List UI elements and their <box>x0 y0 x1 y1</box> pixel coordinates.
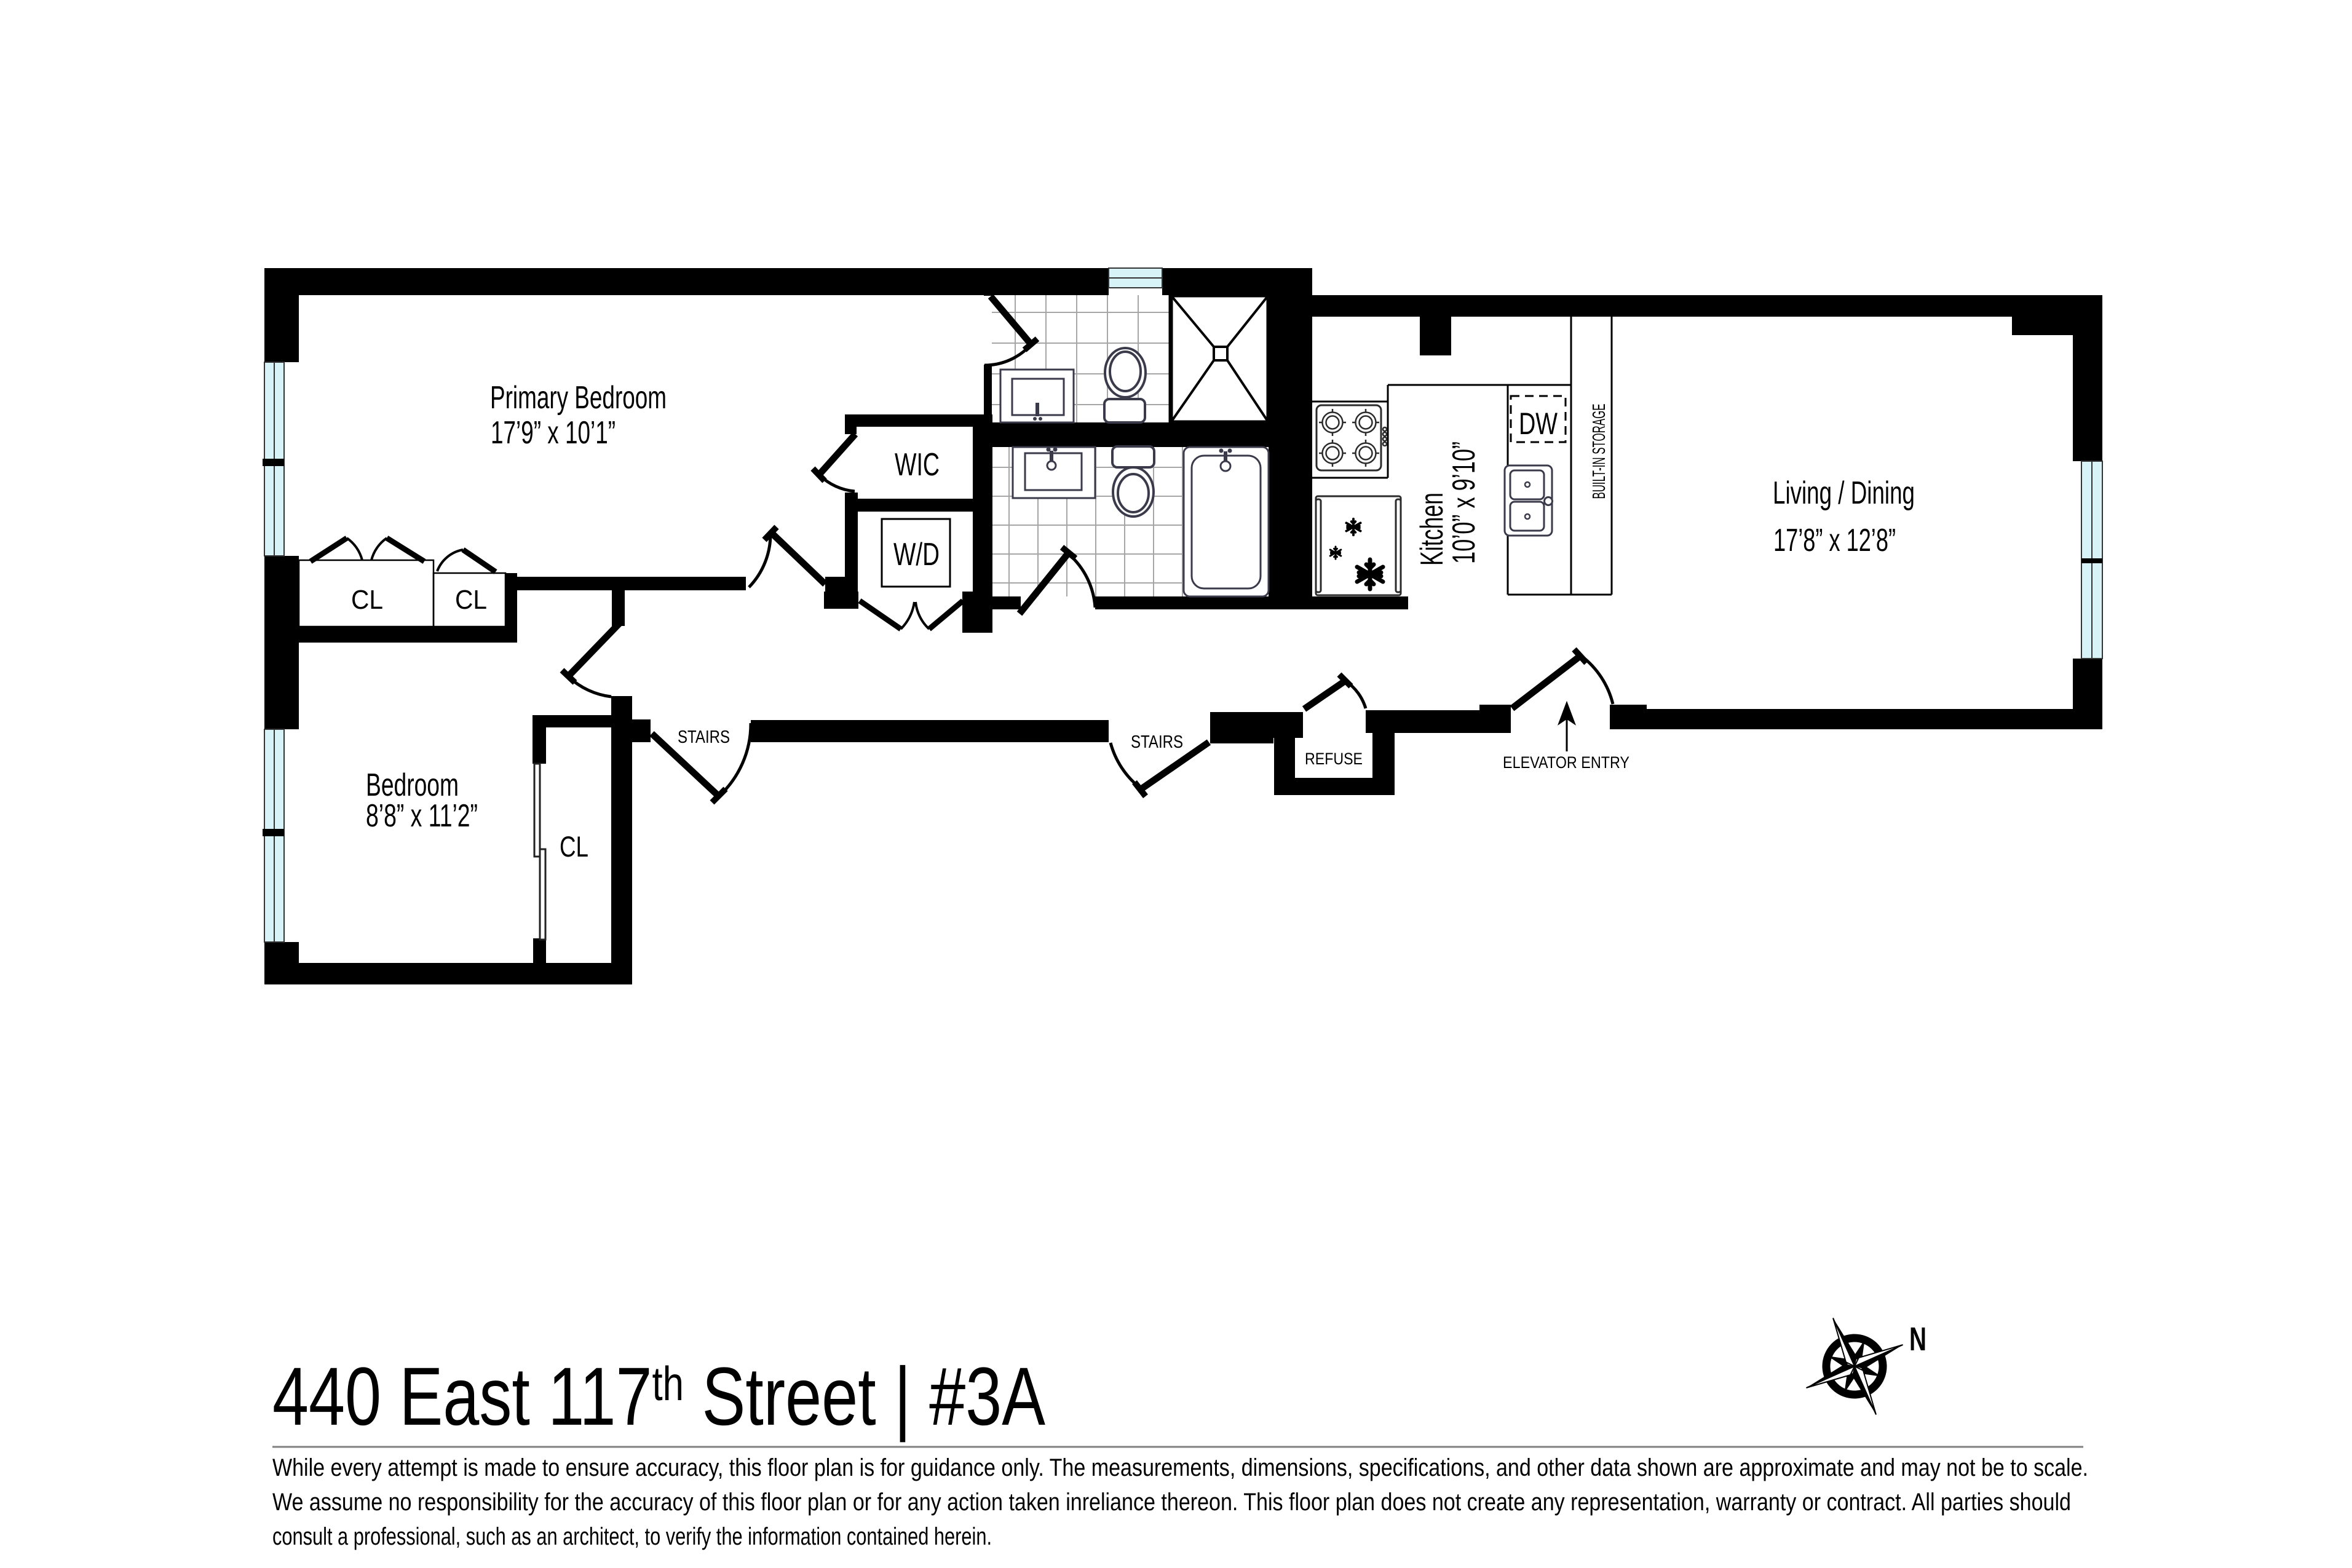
svg-text:10’0” x 9’10”: 10’0” x 9’10” <box>1446 441 1482 564</box>
svg-text:While every attempt is made to: While every attempt is made to ensure ac… <box>272 1454 2088 1481</box>
svg-text:WIC: WIC <box>895 447 940 483</box>
svg-text:CL: CL <box>455 585 487 615</box>
svg-text:ELEVATOR ENTRY: ELEVATOR ENTRY <box>1503 753 1629 772</box>
svg-text:DW: DW <box>1519 406 1558 441</box>
svg-text:W/D: W/D <box>893 537 940 572</box>
svg-text:Living / Dining: Living / Dining <box>1773 475 1915 511</box>
svg-text:consult a professional, such a: consult a professional, such as an archi… <box>272 1523 992 1550</box>
svg-text:N: N <box>1909 1321 1926 1358</box>
svg-text:8’8” x 11’2”: 8’8” x 11’2” <box>366 798 478 834</box>
svg-text:CL: CL <box>351 585 383 615</box>
svg-text:REFUSE: REFUSE <box>1305 750 1363 768</box>
svg-text:BUILT-IN STORAGE: BUILT-IN STORAGE <box>1590 404 1609 499</box>
svg-text:Kitchen: Kitchen <box>1414 493 1450 566</box>
svg-text:CL: CL <box>560 830 588 863</box>
svg-text:17’8” x 12’8”: 17’8” x 12’8” <box>1773 523 1896 558</box>
svg-text:17’9” x 10’1”: 17’9” x 10’1” <box>491 415 616 451</box>
svg-text:We assume no responsibility fo: We assume no responsibility for the accu… <box>272 1489 2071 1516</box>
svg-text:STAIRS: STAIRS <box>1131 732 1183 752</box>
svg-text:STAIRS: STAIRS <box>678 727 730 747</box>
svg-text:Primary Bedroom: Primary Bedroom <box>490 380 667 416</box>
